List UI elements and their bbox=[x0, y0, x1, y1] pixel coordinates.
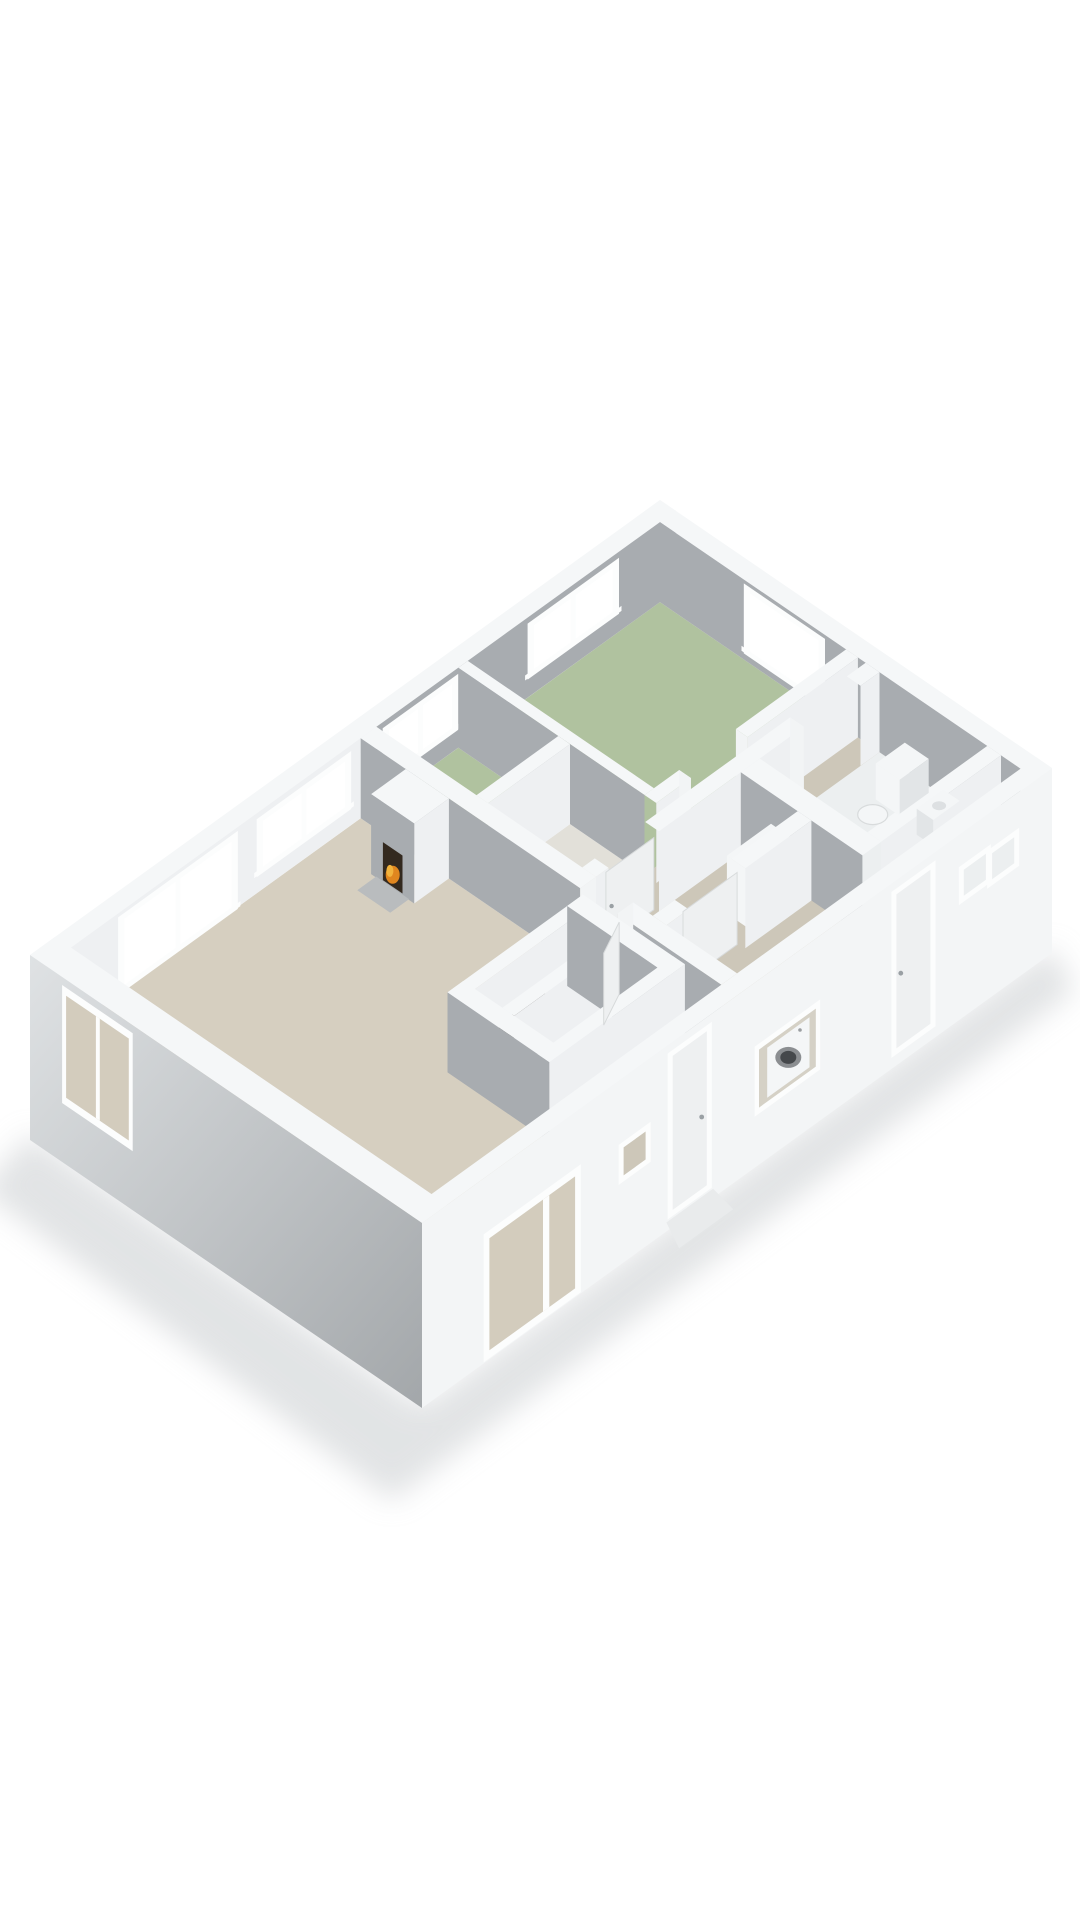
floor-plan-viewport bbox=[0, 0, 1080, 1920]
back-door-handle bbox=[898, 971, 903, 976]
toilet-bowl bbox=[858, 805, 888, 825]
washing-machine-knob bbox=[798, 1028, 802, 1032]
window-living-nw-french-mullion bbox=[176, 878, 181, 948]
back-door-panel bbox=[896, 870, 930, 1049]
hand-basin-bowl bbox=[932, 801, 946, 810]
wall-hall-n-face-a bbox=[861, 672, 880, 766]
window-living-sw-mullion bbox=[96, 1016, 100, 1121]
window-bedroom-1-nw-mullion bbox=[571, 595, 576, 643]
front-door-panel bbox=[673, 1031, 707, 1210]
window-bedroom-2-nw-mullion bbox=[418, 705, 423, 753]
window-living-se-mullion bbox=[543, 1195, 549, 1312]
washing-machine-door-glass bbox=[780, 1051, 796, 1064]
flame-core bbox=[386, 865, 393, 877]
front-door-handle bbox=[699, 1115, 704, 1120]
window-living-nw-1-mullion bbox=[302, 789, 307, 839]
floor-plan-3d bbox=[0, 0, 1080, 1920]
bathroom-door-handle bbox=[609, 904, 613, 908]
